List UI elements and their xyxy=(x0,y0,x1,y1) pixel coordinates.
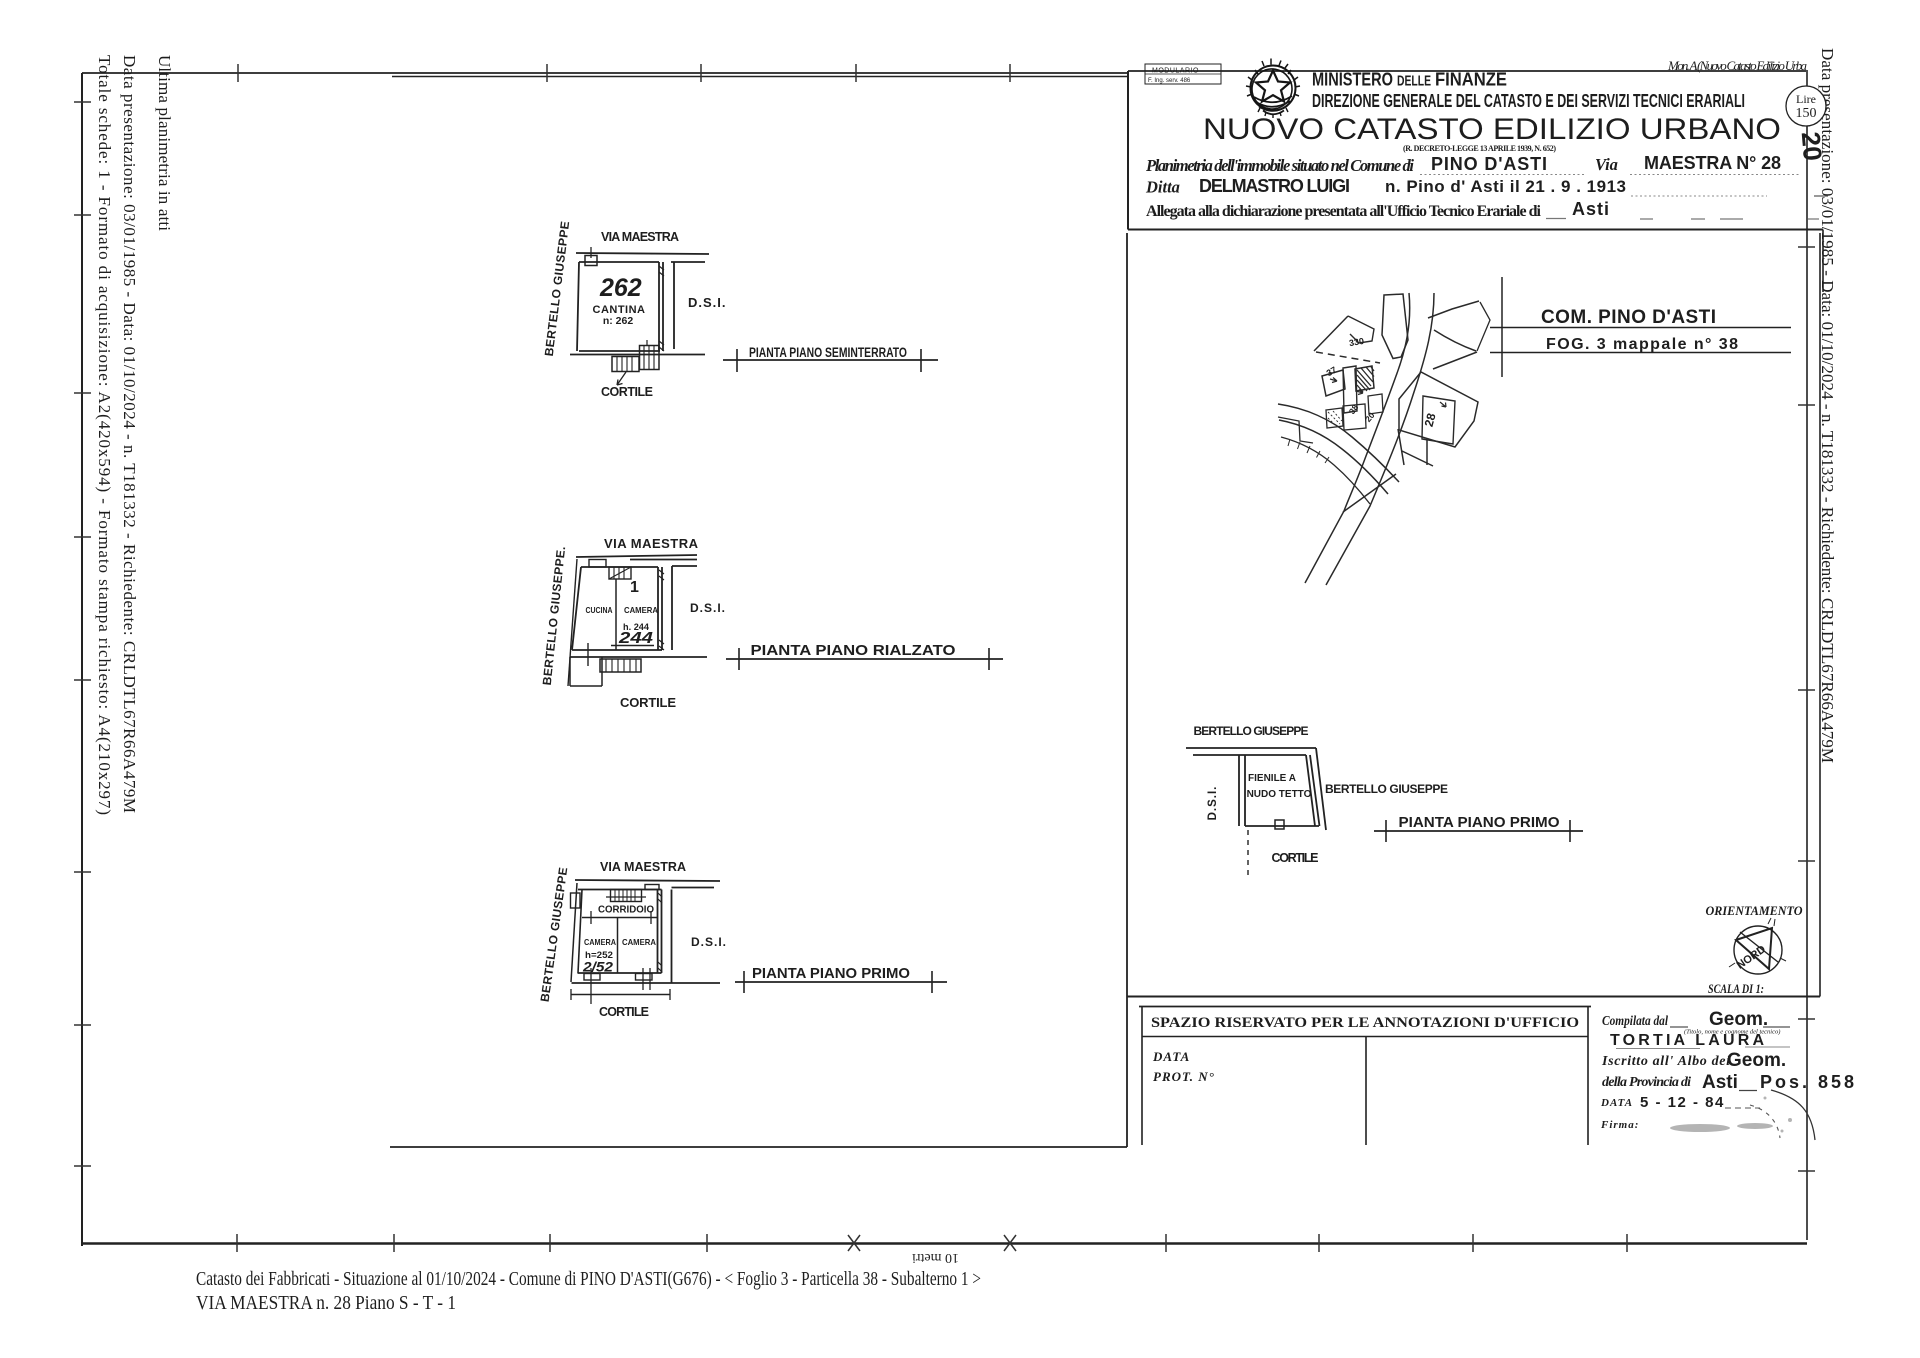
svg-text:FINANZE: FINANZE xyxy=(1435,70,1507,90)
svg-text:CORTILE: CORTILE xyxy=(1272,851,1319,865)
svg-text:BERTELLO GIUSEPPE.: BERTELLO GIUSEPPE. xyxy=(540,545,569,686)
svg-text:PIANTA PIANO RIALZATO: PIANTA PIANO RIALZATO xyxy=(751,642,956,659)
svg-text:PINO D'ASTI: PINO D'ASTI xyxy=(1431,154,1547,174)
svg-text:DATA: DATA xyxy=(1600,1097,1633,1109)
svg-text:F. Ing. serv. 486: F. Ing. serv. 486 xyxy=(1148,78,1191,84)
svg-text:SPAZIO RISERVATO PER LE ANNOTA: SPAZIO RISERVATO PER LE ANNOTAZIONI D'UF… xyxy=(1151,1015,1579,1031)
svg-text:D.S.I.: D.S.I. xyxy=(1207,786,1219,821)
svg-text:VIA MAESTRA: VIA MAESTRA xyxy=(601,230,679,244)
svg-text:Asti: Asti xyxy=(1702,1072,1738,1093)
svg-text:TORTIA LAURA: TORTIA LAURA xyxy=(1610,1032,1764,1049)
svg-text:VIA MAESTRA n. 28 Piano S - T: VIA MAESTRA n. 28 Piano S - T - 1 xyxy=(196,1293,456,1314)
svg-text:MINISTERO: MINISTERO xyxy=(1312,70,1393,90)
svg-text:n. Pino d' Asti il 21 . 9 . 19: n. Pino d' Asti il 21 . 9 . 1913 xyxy=(1385,177,1626,196)
svg-text:Iscritto all' Albo dei: Iscritto all' Albo dei xyxy=(1601,1054,1730,1069)
svg-text:MODULARIO: MODULARIO xyxy=(1152,68,1199,75)
svg-text:NUOVO CATASTO EDILIZIO URBANO: NUOVO CATASTO EDILIZIO URBANO xyxy=(1203,113,1781,146)
svg-text:Planimetria dell'immobile situ: Planimetria dell'immobile situato nel Co… xyxy=(1145,156,1414,175)
svg-text:CORRIDOIO: CORRIDOIO xyxy=(598,905,654,916)
svg-text:1: 1 xyxy=(630,579,639,596)
svg-text:150: 150 xyxy=(1796,106,1817,121)
svg-text:FOG. 3 mappale n° 38: FOG. 3 mappale n° 38 xyxy=(1546,336,1738,353)
svg-text:Pos. 858: Pos. 858 xyxy=(1760,1072,1857,1092)
svg-text:20: 20 xyxy=(1796,131,1828,162)
svg-text:CAMERA: CAMERA xyxy=(624,605,658,615)
svg-text:CORTILE: CORTILE xyxy=(620,695,676,710)
svg-text:BERTELLO GIUSEPPE: BERTELLO GIUSEPPE xyxy=(1194,724,1309,738)
svg-text:PIANTA PIANO SEMINTERRATO: PIANTA PIANO SEMINTERRATO xyxy=(749,345,907,360)
svg-text:PIANTA PIANO PRIMO: PIANTA PIANO PRIMO xyxy=(752,965,910,982)
svg-text:D.S.I.: D.S.I. xyxy=(688,295,727,310)
svg-text:Data presentazione: 03/01/1985: Data presentazione: 03/01/1985 - Data: 0… xyxy=(120,55,139,813)
svg-text:NORD: NORD xyxy=(1735,943,1768,971)
svg-text:Totale schede: 1 - Formato di: Totale schede: 1 - Formato di acquisizio… xyxy=(95,55,114,815)
svg-text:DELMASTRO LUIGI: DELMASTRO LUIGI xyxy=(1199,176,1350,196)
svg-text:ORIENTAMENTO: ORIENTAMENTO xyxy=(1706,903,1804,918)
svg-text:Ultima planimetria in atti: Ultima planimetria in atti xyxy=(155,55,174,231)
svg-text:della Provincia di: della Provincia di xyxy=(1602,1075,1691,1090)
svg-text:VIA MAESTRA: VIA MAESTRA xyxy=(604,536,699,551)
svg-text:Geom.: Geom. xyxy=(1727,1050,1786,1071)
svg-text:Allegata alla dichiarazione pr: Allegata alla dichiarazione presentata a… xyxy=(1146,203,1542,220)
svg-text:SCALA DI 1:: SCALA DI 1: xyxy=(1708,982,1764,996)
svg-text:Mon. A (Nuovo Catasto Edilizio: Mon. A (Nuovo Catasto Edilizio Urba xyxy=(1667,58,1808,73)
svg-text:5 - 12 - 84: 5 - 12 - 84 xyxy=(1640,1094,1725,1111)
svg-text:(R. DECRETO-LEGGE 13 APRILE 19: (R. DECRETO-LEGGE 13 APRILE 1939, N. 652… xyxy=(1403,144,1556,153)
svg-text:262: 262 xyxy=(599,274,642,302)
svg-text:DATA: DATA xyxy=(1152,1049,1190,1064)
svg-text:CORTILE: CORTILE xyxy=(601,385,653,399)
svg-text:CORTILE: CORTILE xyxy=(599,1005,649,1019)
svg-text:28: 28 xyxy=(1422,411,1439,428)
svg-text:10 metri: 10 metri xyxy=(912,1250,959,1265)
svg-text:BERTELLO GIUSEPPE: BERTELLO GIUSEPPE xyxy=(538,866,571,1003)
svg-text:NUDO TETTO: NUDO TETTO xyxy=(1247,789,1312,800)
svg-text:Firma:: Firma: xyxy=(1600,1119,1639,1131)
svg-text:FIENILE A: FIENILE A xyxy=(1248,773,1296,784)
svg-text:CAMERA: CAMERA xyxy=(584,937,616,947)
svg-text:Asti: Asti xyxy=(1572,199,1610,219)
svg-text:DELLE: DELLE xyxy=(1397,74,1431,90)
svg-text:Compilata dal: Compilata dal xyxy=(1602,1014,1668,1029)
svg-text:PROT. N°: PROT. N° xyxy=(1153,1069,1215,1084)
svg-text:BERTELLO GIUSEPPE: BERTELLO GIUSEPPE xyxy=(542,220,572,357)
svg-text:MAESTRA N° 28: MAESTRA N° 28 xyxy=(1644,153,1781,173)
svg-text:37: 37 xyxy=(1325,365,1339,379)
svg-text:Geom.: Geom. xyxy=(1709,1009,1768,1030)
svg-text:Ditta: Ditta xyxy=(1145,178,1180,197)
svg-text:BERTELLO GIUSEPPE: BERTELLO GIUSEPPE xyxy=(1325,782,1448,796)
svg-text:Catasto dei Fabbricati - Situa: Catasto dei Fabbricati - Situazione al 0… xyxy=(196,1269,981,1290)
svg-text:D.S.I.: D.S.I. xyxy=(691,935,727,949)
svg-text:244: 244 xyxy=(618,630,653,647)
svg-text:COM. PINO D'ASTI: COM. PINO D'ASTI xyxy=(1541,307,1716,328)
svg-text:2/52: 2/52 xyxy=(582,959,613,975)
svg-text:Via: Via xyxy=(1595,155,1618,174)
svg-text:330: 330 xyxy=(1348,336,1365,348)
svg-text:Lire: Lire xyxy=(1796,92,1816,106)
svg-text:D.S.I.: D.S.I. xyxy=(690,601,726,615)
svg-text:PIANTA PIANO PRIMO: PIANTA PIANO PRIMO xyxy=(1399,814,1560,831)
svg-text:CUCINA: CUCINA xyxy=(586,605,613,615)
svg-text:CAMERA: CAMERA xyxy=(622,937,656,947)
svg-text:n: 262: n: 262 xyxy=(603,315,634,327)
svg-text:DIREZIONE GENERALE DEL CATASTO: DIREZIONE GENERALE DEL CATASTO E DEI SER… xyxy=(1312,90,1745,111)
svg-text:VIA MAESTRA: VIA MAESTRA xyxy=(600,860,686,874)
